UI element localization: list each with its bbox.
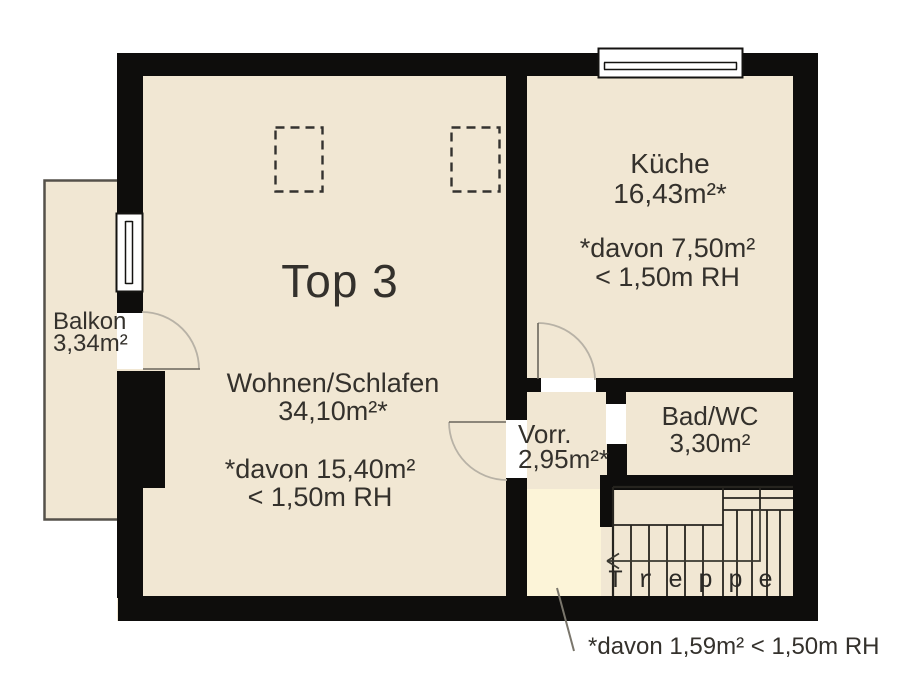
room-label-bath: Bad/WC 3,30m² — [632, 403, 788, 457]
wall-central-upper — [506, 53, 527, 420]
living-note-line1: *davon 15,40m² — [200, 455, 440, 483]
window-left — [117, 214, 143, 292]
wall-left-lower — [117, 488, 143, 598]
bath-name: Bad/WC — [632, 403, 788, 430]
wall-kitchen-nib — [527, 378, 541, 392]
hallway-area: 2,95m²* — [518, 447, 638, 472]
balcony-area: 3,34m² — [53, 333, 173, 355]
kitchen-note-line1: *davon 7,50m² — [565, 234, 770, 263]
room-note-kitchen: *davon 7,50m² < 1,50m RH — [565, 234, 770, 292]
wall-left-pillar — [117, 371, 165, 488]
wall-left-upper — [117, 53, 143, 215]
room-label-stairs: Treppe — [608, 568, 788, 594]
living-room-area: 34,10m²* — [202, 397, 464, 425]
room-label-kitchen: Küche 16,43m²* — [570, 149, 770, 209]
wall-kitchen-bottom — [596, 378, 793, 392]
kitchen-name: Küche — [570, 149, 770, 179]
room-label-balcony: Balkon 3,34m² — [53, 311, 173, 355]
wall-bottom — [118, 596, 818, 621]
floor-plan: Top 3 Wohnen/Schlafen 34,10m²* *davon 15… — [0, 0, 900, 689]
bath-area: 3,30m² — [632, 430, 788, 457]
wall-central-lower — [506, 478, 527, 598]
window-kitchen — [599, 49, 743, 78]
kitchen-door-opening — [541, 378, 596, 392]
room-note-living: *davon 15,40m² < 1,50m RH — [200, 455, 440, 511]
apartment-floor — [117, 53, 818, 621]
room-label-hallway: Vorr. 2,95m²* — [518, 422, 638, 472]
wall-right — [793, 53, 818, 621]
kitchen-area: 16,43m²* — [570, 179, 770, 209]
kitchen-note-line2: < 1,50m RH — [565, 263, 770, 292]
wall-stair-side — [600, 475, 613, 527]
room-label-living: Wohnen/Schlafen 34,10m²* — [202, 369, 464, 425]
unit-title: Top 3 — [240, 256, 440, 306]
living-note-line2: < 1,50m RH — [200, 483, 440, 511]
living-room-name: Wohnen/Schlafen — [202, 369, 464, 397]
footnote-text: *davon 1,59m² < 1,50m RH — [588, 634, 879, 660]
wall-bath-nib — [606, 392, 626, 404]
reduced-height-area — [527, 489, 601, 596]
